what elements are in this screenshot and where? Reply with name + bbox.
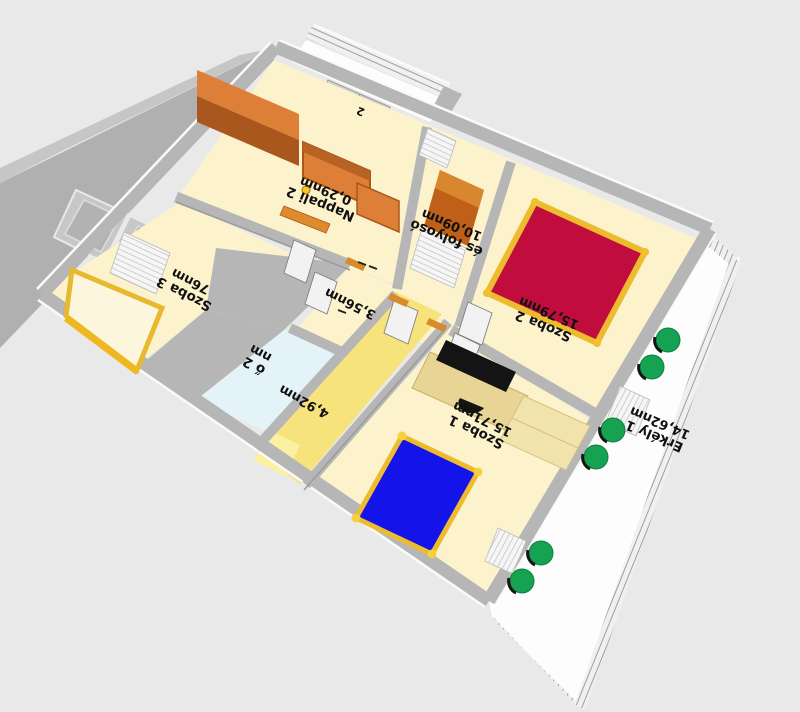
floor-plan-3d-view: Nappali 2 0,29nm és folyosó 10,09nm Szob… [0, 0, 800, 712]
floor-plan-viewport: Nappali 2 0,29nm és folyosó 10,09nm Szob… [0, 0, 800, 712]
